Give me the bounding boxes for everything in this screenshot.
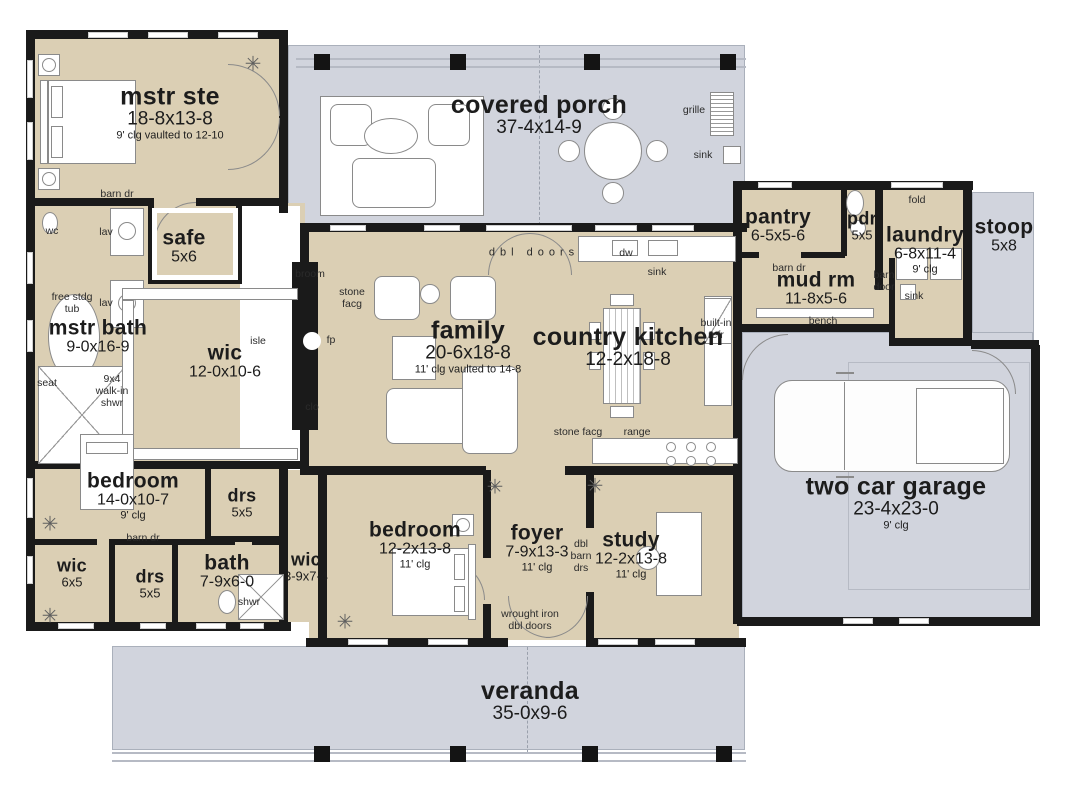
porch-column xyxy=(716,746,732,762)
room-label-wic-hall: wic3-9x7-4 xyxy=(284,551,328,584)
porch-beam xyxy=(296,66,746,68)
room-label-country-kitchen: country kitchen12-2x18-8 xyxy=(533,324,724,370)
porch-beam xyxy=(112,760,746,762)
room-label-bedroom-2: bedroom12-2x13-811' clg xyxy=(369,519,461,570)
burner xyxy=(706,442,716,452)
label-broom: broom xyxy=(295,268,325,280)
window xyxy=(486,225,572,231)
bed-headboard xyxy=(40,80,48,164)
ceiling-fixture-icon xyxy=(38,168,60,190)
wall xyxy=(109,545,115,625)
wall xyxy=(483,604,491,644)
label-isle: isle xyxy=(250,335,266,347)
window xyxy=(27,60,33,98)
label-range: range xyxy=(624,426,651,438)
label-clo: clo xyxy=(305,401,318,413)
label-lav-upper: lav xyxy=(99,226,112,238)
wall xyxy=(889,338,969,346)
hallway-area xyxy=(240,206,300,462)
label-seat: seat xyxy=(37,377,57,389)
wall xyxy=(801,252,845,258)
room-label-bath: bath7-9x6-0 xyxy=(200,553,254,592)
dining-chair xyxy=(602,182,624,204)
room-label-family: family20-6x18-811' clg vaulted to 14-8 xyxy=(415,318,521,377)
wall xyxy=(205,466,211,542)
bed-headboard xyxy=(468,544,476,620)
burner xyxy=(706,456,716,466)
label-sink-laundry: sink xyxy=(905,290,924,302)
armchair xyxy=(374,276,420,320)
porch-column xyxy=(314,746,330,762)
burner xyxy=(686,456,696,466)
dining-chair xyxy=(558,140,580,162)
pillow xyxy=(454,586,465,612)
chair xyxy=(610,294,634,306)
room-label-bedroom-1: bedroom14-0x10-79' clg xyxy=(87,470,179,521)
porch-column xyxy=(584,54,600,70)
plant-icon: ✳ xyxy=(42,604,59,629)
label-dbl-doors: dbl doors xyxy=(489,247,579,260)
room-label-covered-porch: covered porch37-4x14-9 xyxy=(451,92,627,138)
window xyxy=(891,182,943,188)
grille-unit xyxy=(710,92,734,136)
porch-column xyxy=(450,746,466,762)
label-dw: dw xyxy=(619,247,632,259)
wic-shelf xyxy=(122,288,298,300)
window xyxy=(330,225,366,231)
porch-sink xyxy=(723,146,741,164)
wall xyxy=(279,30,288,213)
room-label-foyer: foyer7-9x13-311' clg xyxy=(505,522,568,573)
plant-icon: ✳ xyxy=(42,512,59,537)
room-label-laundry: laundry6-8x11-49' clg xyxy=(886,224,964,275)
burner xyxy=(666,456,676,466)
porch-beam xyxy=(296,58,746,60)
label-fp: fp xyxy=(327,334,336,346)
window xyxy=(140,623,166,629)
label-shwr-bath: shwr xyxy=(238,596,260,608)
fireplace-notch xyxy=(303,332,321,350)
kitchen-sink xyxy=(648,240,678,256)
pillow xyxy=(51,86,63,118)
plant-icon: ✳ xyxy=(587,474,604,499)
room-label-mstr-bath: mstr bath9-0x16-9 xyxy=(49,318,147,357)
dining-chair xyxy=(646,140,668,162)
label-built-in-refr: built-inrefr xyxy=(701,317,732,341)
wall xyxy=(737,617,1038,626)
room-label-veranda: veranda35-0x9-6 xyxy=(481,678,579,724)
label-dbl-barn-drs: dblbarndrs xyxy=(570,538,591,574)
label-bench: bench xyxy=(809,315,838,327)
coffee-table xyxy=(364,118,418,154)
window xyxy=(27,320,33,352)
wall xyxy=(306,466,486,475)
window xyxy=(58,623,94,629)
label-walk-in-shwr: 9x4walk-inshwr xyxy=(96,373,129,409)
label-stone-facg-left: stonefacg xyxy=(339,286,365,310)
room-label-wic-small: wic6x5 xyxy=(57,557,87,590)
porch-column xyxy=(450,54,466,70)
room-label-wic-master: wic12-0x10-6 xyxy=(189,343,261,382)
toilet xyxy=(218,590,236,614)
window xyxy=(218,32,258,38)
window xyxy=(843,618,873,624)
lav-sink xyxy=(118,222,136,240)
room-label-mstr-ste: mstr ste18-8x13-89' clg vaulted to 12-10 xyxy=(116,84,223,143)
label-barn-door-laund: barndoor xyxy=(873,269,894,293)
room-label-two-car-garage: two car garage23-4x23-09' clg xyxy=(806,474,987,533)
label-free-stdg-tub: free stdgtub xyxy=(52,291,93,315)
room-label-pantry: pantry6-5x5-6 xyxy=(745,207,811,246)
range-counter xyxy=(592,438,738,464)
room-label-study: study12-2x13-811' clg xyxy=(595,529,667,580)
wall xyxy=(733,252,759,258)
label-stone-facg-btm: stone facg xyxy=(554,426,602,438)
side-table xyxy=(420,284,440,304)
window xyxy=(424,225,460,231)
ceiling-fixture-icon xyxy=(38,54,60,76)
window xyxy=(148,32,188,38)
porch-column xyxy=(314,54,330,70)
truck-bed xyxy=(916,388,1004,464)
label-wrought-iron: wrought irondbl doors xyxy=(501,608,559,632)
room-label-stoop: stoop5x8 xyxy=(975,217,1034,256)
veranda-area xyxy=(112,646,745,750)
room-label-drs-left: drs5x5 xyxy=(136,568,165,601)
window xyxy=(428,639,468,645)
window xyxy=(598,639,638,645)
porch-column xyxy=(720,54,736,70)
window xyxy=(88,32,128,38)
sectional-sofa xyxy=(462,366,518,454)
label-sink-porch: sink xyxy=(694,149,713,161)
wall xyxy=(35,539,97,545)
label-fold: fold xyxy=(909,194,926,206)
room-label-mud-rm: mud rm11-8x5-6 xyxy=(777,270,856,309)
room-label-safe: safe5x6 xyxy=(162,228,205,267)
burner xyxy=(666,442,676,452)
window xyxy=(348,639,388,645)
wall xyxy=(26,198,154,206)
window xyxy=(27,556,33,584)
window xyxy=(27,252,33,284)
pillow xyxy=(51,126,63,158)
wall xyxy=(733,330,742,624)
label-barn-dr-bedroom: barn dr xyxy=(126,532,159,544)
porch-sofa xyxy=(352,158,436,208)
label-grille: grille xyxy=(683,104,705,116)
window xyxy=(655,639,695,645)
label-wc: wc xyxy=(46,225,59,237)
porch-column xyxy=(582,746,598,762)
label-sink-kitchen: sink xyxy=(648,266,667,278)
truck-line xyxy=(844,382,845,470)
pillow xyxy=(86,442,128,454)
wall xyxy=(306,638,508,647)
window xyxy=(652,225,694,231)
window xyxy=(27,122,33,160)
room-label-pdr: pdr5x5 xyxy=(847,210,877,243)
label-barn-dr-master: barn dr xyxy=(100,188,133,200)
chair xyxy=(610,406,634,418)
burner xyxy=(686,442,696,452)
label-lav-lower: lav xyxy=(99,297,112,309)
truck-mirror xyxy=(836,372,854,374)
armchair xyxy=(450,276,496,320)
label-barn-dr-mudrm: barn dr xyxy=(772,262,805,274)
wall xyxy=(172,545,178,625)
room-label-drs-right: drs5x5 xyxy=(228,487,257,520)
window xyxy=(758,182,792,188)
wall xyxy=(205,536,285,542)
window xyxy=(595,225,637,231)
porch-beam xyxy=(112,752,746,754)
wall xyxy=(971,340,1039,349)
window xyxy=(27,478,33,518)
window xyxy=(240,623,264,629)
plant-icon: ✳ xyxy=(337,610,354,635)
wall xyxy=(963,188,972,346)
wall xyxy=(1031,345,1040,626)
plant-icon: ✳ xyxy=(487,475,504,500)
floor-plan: mstr ste18-8x13-89' clg vaulted to 12-10… xyxy=(0,0,1074,800)
window xyxy=(196,623,226,629)
wic-shelf xyxy=(122,448,298,460)
window xyxy=(899,618,929,624)
plant-icon: ✳ xyxy=(245,52,262,77)
